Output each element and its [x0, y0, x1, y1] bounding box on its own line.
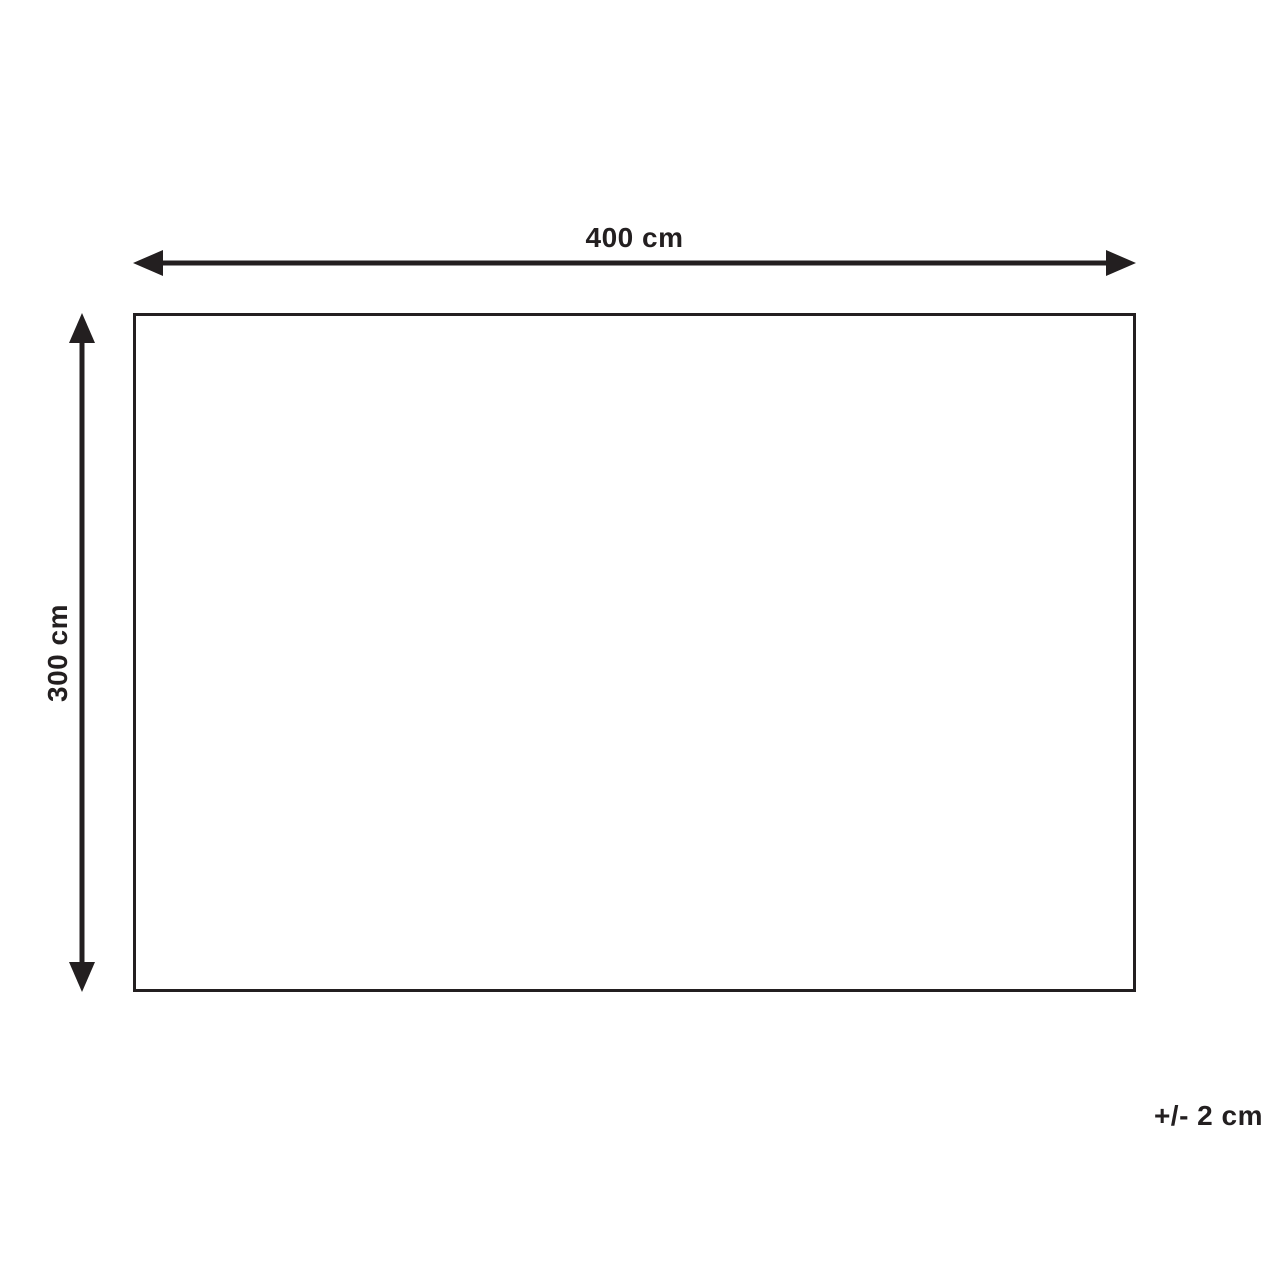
- tolerance-label: +/- 2 cm: [1154, 1100, 1263, 1132]
- dimension-diagram-canvas: 400 cm 300 cm +/- 2 cm: [0, 0, 1280, 1280]
- height-arrow-shaft: [80, 321, 85, 984]
- height-label-container: 300 cm: [38, 313, 78, 992]
- width-arrow-shaft: [141, 261, 1128, 266]
- product-outline-rectangle: [133, 313, 1136, 992]
- width-dimension-arrow: [133, 250, 1136, 276]
- arrowhead-right-icon: [1106, 250, 1136, 276]
- height-dimension-label: 300 cm: [42, 604, 74, 702]
